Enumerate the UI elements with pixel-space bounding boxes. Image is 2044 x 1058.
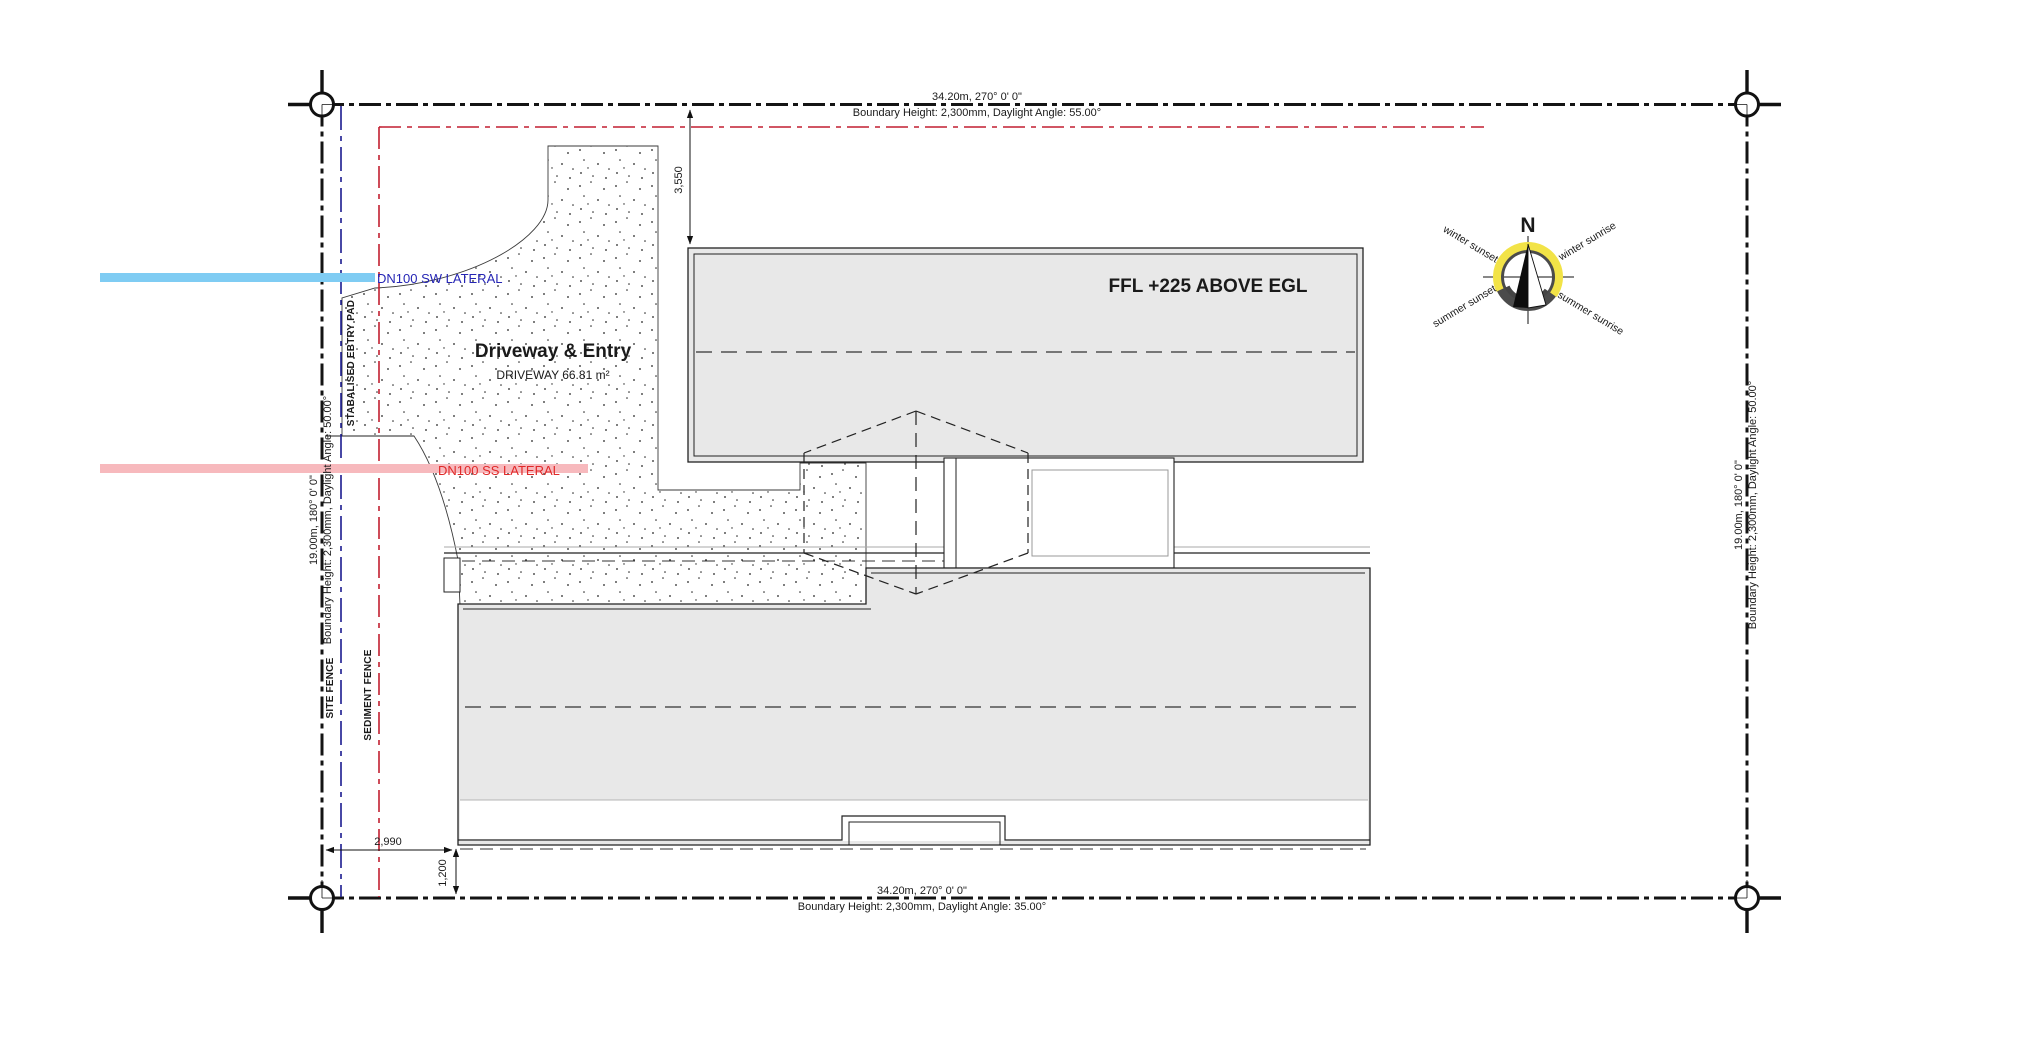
dimension-front-setback: 3,550 <box>673 110 690 244</box>
dimension-side-setback: 2,990 <box>326 836 452 850</box>
building-corner-step <box>444 558 460 592</box>
driveway-area-label: DRIVEWAY 66.81 m² <box>496 368 609 382</box>
top-boundary-dimension: 34.20m, 270° 0' 0" <box>932 91 1022 103</box>
courtyard-box <box>944 458 1174 568</box>
sediment-fence-label: SEDIMENT FENCE <box>363 649 374 740</box>
compass-winter-sunrise-label: winter sunrise <box>1556 220 1619 264</box>
ss-lateral-label: DN100 SS LATERAL <box>438 463 560 478</box>
svg-text:1,200: 1,200 <box>437 859 449 887</box>
site-plan-drawing: DN100 SW LATERAL DN100 SS LATERAL 3,550 … <box>0 0 2044 1058</box>
ffl-label: FFL +225 ABOVE EGL <box>1108 276 1307 297</box>
svg-text:2,990: 2,990 <box>374 836 402 848</box>
left-boundary-dimension: 19.00m, 180° 0' 0" <box>308 475 320 565</box>
site-fence-label: SITE FENCE <box>325 657 336 718</box>
lower-building <box>458 568 1370 849</box>
driveway-title: Driveway & Entry <box>475 341 632 362</box>
right-boundary-dimension: 19.00m, 180° 0' 0" <box>1733 460 1745 550</box>
svg-text:3,550: 3,550 <box>673 166 685 194</box>
north-compass-icon: N winter sunset winter sunrise summer su… <box>1431 214 1626 338</box>
sw-lateral-band <box>100 273 375 282</box>
dimension-rear-setback: 1,200 <box>437 849 456 894</box>
right-boundary-note: Boundary Height: 2,300mm, Daylight Angle… <box>1747 381 1759 629</box>
left-boundary-note: Boundary Height: 2,300mm, Daylight Angle… <box>322 396 334 644</box>
bottom-boundary-note: Boundary Height: 2,300mm, Daylight Angle… <box>798 901 1046 913</box>
compass-north-label: N <box>1520 214 1535 237</box>
sw-lateral-label: DN100 SW LATERAL <box>377 271 502 286</box>
compass-summer-sunset-label: summer sunset <box>1431 283 1499 330</box>
stabilised-entry-pad-label: STABALISED EBTRY PAD <box>346 300 357 426</box>
site-plan-canvas: DN100 SW LATERAL DN100 SS LATERAL 3,550 … <box>0 0 2044 1058</box>
bottom-boundary-dimension: 34.20m, 270° 0' 0" <box>877 885 967 897</box>
top-boundary-note: Boundary Height: 2,300mm, Daylight Angle… <box>853 107 1101 119</box>
compass-summer-sunrise-label: summer sunrise <box>1555 289 1625 338</box>
compass-winter-sunset-label: winter sunset <box>1440 223 1500 266</box>
